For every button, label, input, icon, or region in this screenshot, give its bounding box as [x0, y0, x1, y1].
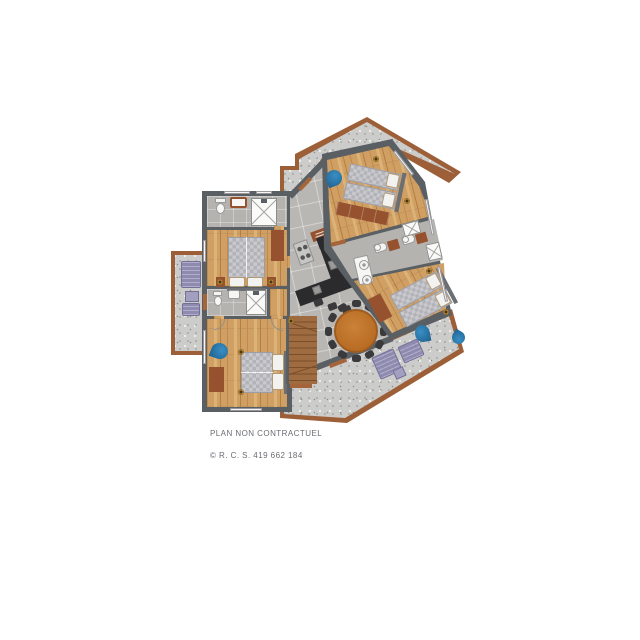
round-sink	[362, 275, 372, 285]
dresser	[209, 367, 224, 392]
shower-head	[253, 291, 259, 295]
toilet-bowl	[402, 236, 409, 243]
dining-chair	[325, 327, 332, 336]
wardrobe	[271, 230, 284, 261]
living-room-floor	[0, 0, 640, 640]
window	[224, 191, 250, 194]
window	[203, 240, 206, 262]
toilet-bowl	[374, 244, 381, 251]
stair-side-wall	[286, 316, 289, 384]
window	[203, 330, 206, 364]
lamp-dot	[268, 279, 274, 285]
bed-seam	[246, 237, 247, 278]
dining-chair	[352, 300, 361, 307]
bathroom-sink	[230, 197, 247, 208]
toilet-bowl	[216, 203, 225, 214]
lamp-dot	[217, 279, 223, 285]
lamp-dot	[373, 156, 379, 162]
bed-pillow	[272, 373, 284, 390]
bathroom-sink	[228, 290, 240, 299]
terrace-door-sill	[203, 294, 207, 310]
lamp-dot	[443, 309, 449, 315]
bed-pillow	[247, 277, 263, 287]
plan-registration: © R. C. S. 419 662 184	[210, 451, 303, 460]
shower	[425, 242, 442, 262]
lounger	[182, 303, 200, 316]
round-sink	[359, 260, 369, 270]
window	[256, 191, 272, 194]
lamp-dot	[426, 268, 432, 274]
bed-pillow	[229, 277, 245, 287]
toilet-bowl	[214, 296, 222, 306]
bed-pillow	[272, 354, 284, 371]
lamp-dot	[238, 389, 244, 395]
lamp-dot	[288, 318, 294, 324]
terrace-side-table	[185, 291, 199, 302]
lamp-dot	[238, 349, 244, 355]
lounger	[181, 261, 201, 288]
lamp-dot	[404, 198, 410, 204]
floor-plan-page: PLAN NON CONTRACTUEL © R. C. S. 419 662 …	[0, 0, 640, 640]
plan-disclaimer: PLAN NON CONTRACTUEL	[210, 429, 322, 438]
window	[230, 408, 262, 411]
stair-threshold	[290, 384, 312, 388]
dining-table	[334, 309, 378, 353]
dining-chair	[352, 355, 361, 362]
hall-floor	[270, 289, 287, 316]
shower-head	[261, 199, 267, 203]
bed-seam	[241, 372, 273, 373]
